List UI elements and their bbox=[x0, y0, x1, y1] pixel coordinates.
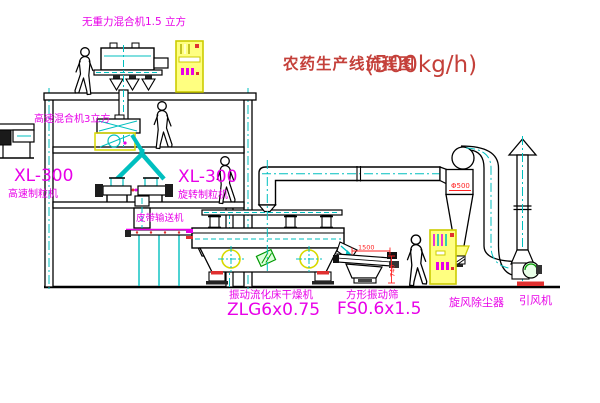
cad-flow-diagram: 无重力混合机1.5 立方 农药生产线流程图 (500kg/h) 高速混合机3立方… bbox=[0, 0, 600, 403]
label-cyclone: 旋风除尘器 bbox=[449, 295, 504, 309]
dryer-feet bbox=[206, 271, 334, 285]
label-xl300-right: XL-300 bbox=[178, 167, 237, 187]
control-cabinet-ground bbox=[430, 230, 456, 284]
exhaust-stack bbox=[509, 136, 536, 282]
dim-sieve-length: 1500 bbox=[358, 244, 375, 252]
label-dryer-model: ZLG6x0.75 bbox=[227, 300, 320, 320]
diagram-title-capacity: (500kg/h) bbox=[365, 52, 477, 78]
induced-draft-fan bbox=[512, 262, 544, 286]
label-high-speed-mixer: 高速混合机3立方 bbox=[34, 112, 110, 125]
gravity-free-mixer bbox=[94, 43, 168, 90]
label-granulator-right: 旋转制粒机 bbox=[178, 188, 228, 201]
human-figure bbox=[154, 102, 172, 149]
label-gravity-free-mixer: 无重力混合机1.5 立方 bbox=[82, 15, 186, 28]
dryer-body bbox=[192, 228, 344, 248]
control-cabinet-top bbox=[176, 41, 203, 92]
mixer-motor bbox=[154, 58, 168, 68]
label-fan: 引风机 bbox=[519, 293, 552, 307]
human-figure bbox=[75, 48, 93, 95]
top-floor-slab bbox=[44, 93, 256, 100]
indicator-lamp bbox=[195, 44, 199, 48]
label-granulator-left: 高速制粒机 bbox=[8, 187, 58, 200]
left-edge-machine bbox=[0, 124, 34, 158]
label-belt-conveyor: 皮带输送机 bbox=[136, 212, 184, 224]
granulator-left bbox=[95, 178, 135, 202]
dim-cyclone-diameter: Φ500 bbox=[451, 182, 470, 190]
dim-sieve-height: 740 bbox=[389, 265, 397, 277]
label-xl300-left: XL-300 bbox=[14, 166, 73, 186]
discharge-hoppers bbox=[110, 75, 155, 90]
sieve-base bbox=[346, 264, 382, 278]
fluid-bed-dryer bbox=[186, 210, 357, 285]
human-figure bbox=[407, 235, 426, 286]
label-sieve-model: FS0.6x1.5 bbox=[337, 299, 421, 319]
drawing-surface: 无重力混合机1.5 立方 农药生产线流程图 (500kg/h) 高速混合机3立方… bbox=[0, 0, 600, 403]
indicator-lamp bbox=[450, 233, 454, 237]
fan-base bbox=[517, 282, 544, 287]
second-floor-slab bbox=[53, 147, 244, 153]
